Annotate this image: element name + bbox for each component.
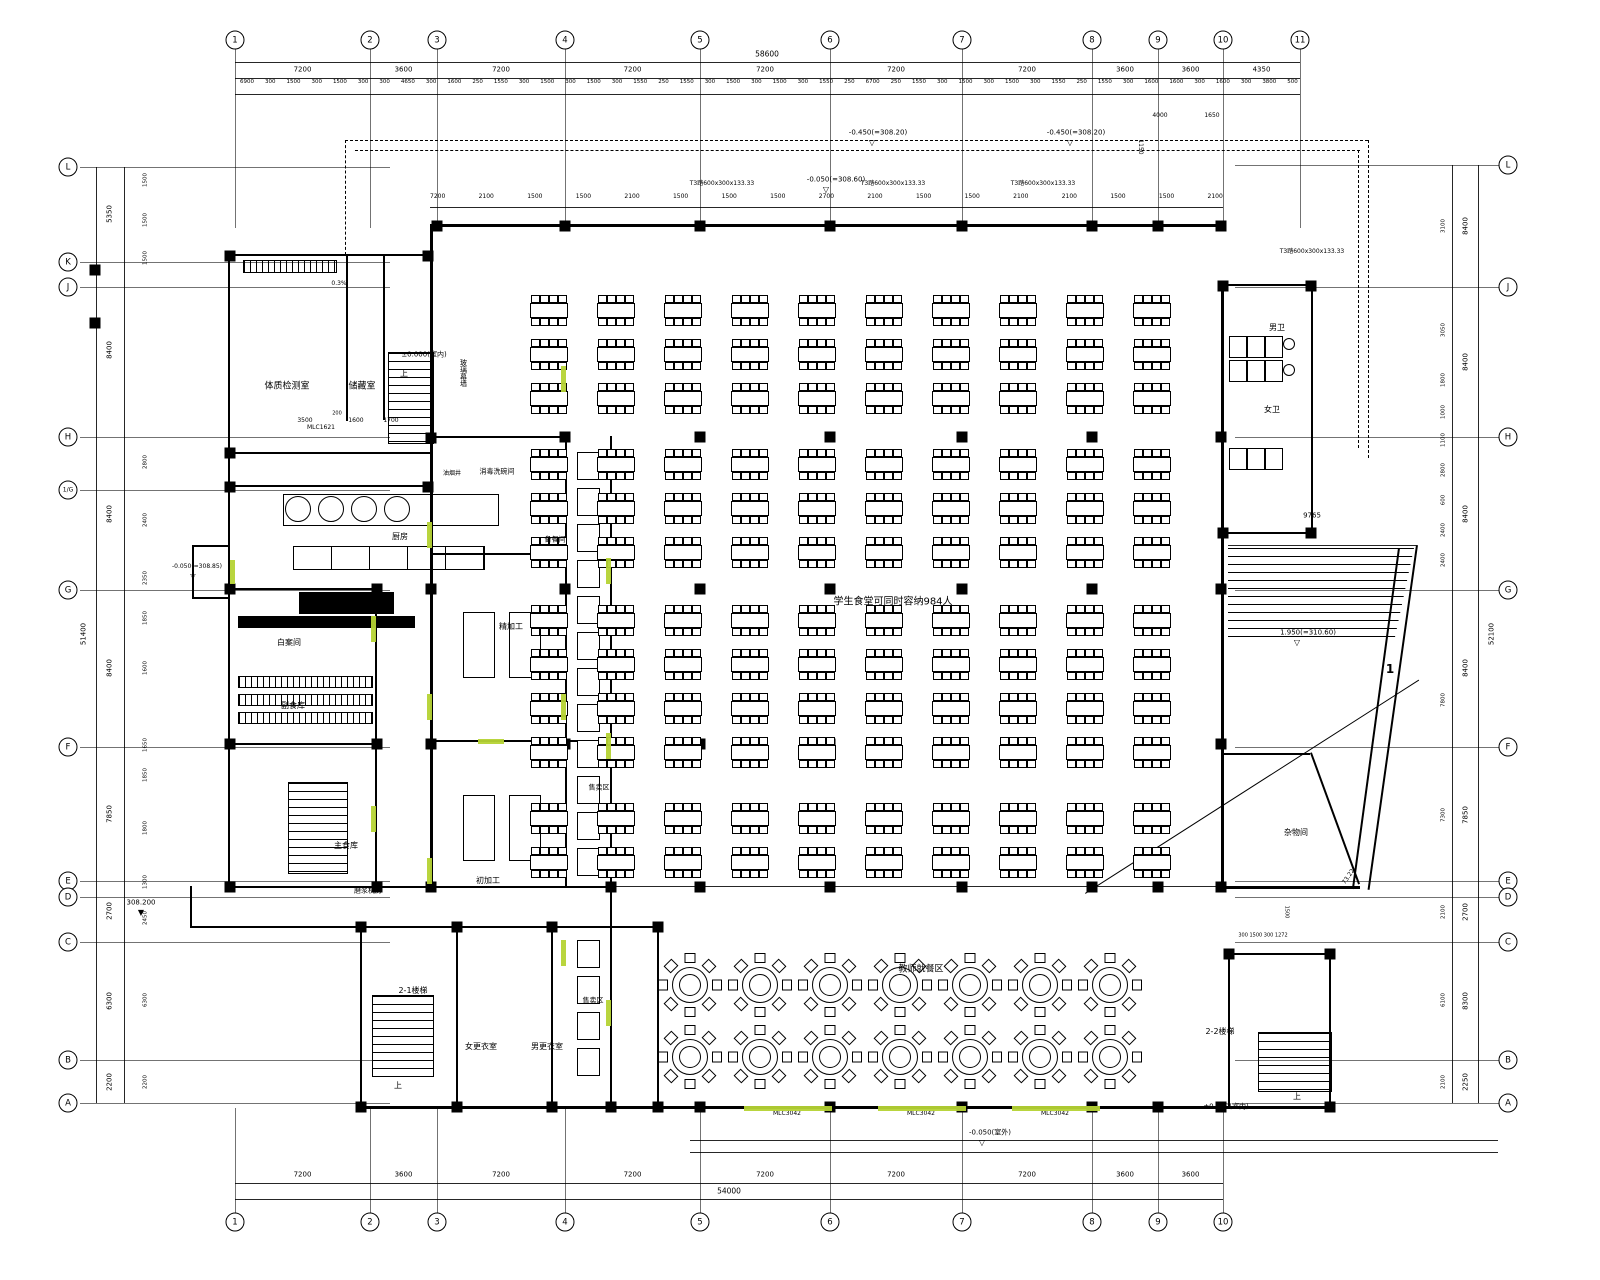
hatch-area — [1258, 1032, 1332, 1092]
chair — [607, 628, 616, 636]
chair — [607, 383, 616, 391]
chair — [893, 493, 902, 501]
dining-table — [530, 457, 568, 472]
chair — [531, 672, 540, 680]
chair — [866, 295, 875, 303]
chair — [1076, 628, 1085, 636]
toilet-stall — [1265, 336, 1283, 358]
dining-table — [932, 303, 970, 318]
chair — [1052, 997, 1067, 1012]
chair — [826, 560, 835, 568]
chair — [1000, 716, 1009, 724]
dim-label: 58600 — [755, 50, 779, 58]
chair — [665, 605, 674, 613]
chair — [875, 472, 884, 480]
chair — [658, 1052, 668, 1063]
chair — [808, 560, 817, 568]
chair — [817, 737, 826, 745]
chair — [750, 737, 759, 745]
dim-label: 1500 — [1005, 80, 1019, 86]
chair — [625, 472, 634, 480]
chair — [933, 449, 942, 457]
door-opening-highlight — [427, 522, 432, 548]
chair — [683, 737, 692, 745]
chair — [960, 649, 969, 657]
chair — [625, 649, 634, 657]
chair — [866, 339, 875, 347]
grid-line — [1235, 437, 1500, 438]
dim-label: 4650 — [401, 80, 415, 86]
chair — [674, 537, 683, 545]
wall — [192, 545, 229, 547]
chair — [942, 472, 951, 480]
chair — [558, 295, 567, 303]
chair — [607, 649, 616, 657]
plan-label: ▼ — [138, 909, 144, 917]
chair — [1161, 493, 1170, 501]
chair — [607, 295, 616, 303]
chair — [616, 449, 625, 457]
chair — [692, 737, 701, 745]
chair — [741, 847, 750, 855]
chair — [1000, 537, 1009, 545]
chair — [817, 362, 826, 370]
chair — [942, 847, 951, 855]
chair — [1085, 560, 1094, 568]
chair — [951, 628, 960, 636]
chair — [692, 295, 701, 303]
dining-table — [1133, 303, 1171, 318]
chair — [665, 693, 674, 701]
chair — [1094, 560, 1103, 568]
dim-label: 1600 — [1144, 80, 1158, 86]
chair — [1018, 537, 1027, 545]
chair — [1094, 716, 1103, 724]
chair — [1027, 493, 1036, 501]
chair — [1076, 803, 1085, 811]
equipment-circle — [351, 496, 377, 522]
dim-label: 250 — [844, 80, 855, 86]
dining-table — [999, 745, 1037, 760]
dim-label: 52100 — [1489, 623, 1496, 645]
chair — [1085, 826, 1094, 834]
chair — [549, 649, 558, 657]
chair — [1078, 1052, 1088, 1063]
chair — [1035, 953, 1046, 963]
chair — [842, 997, 857, 1012]
toilet-stall — [1229, 448, 1247, 470]
chair — [1083, 997, 1098, 1012]
chair — [893, 826, 902, 834]
chair — [1000, 383, 1009, 391]
grid-bubble: F — [1499, 738, 1518, 757]
chair — [1152, 870, 1161, 878]
chair — [1067, 803, 1076, 811]
chair — [732, 339, 741, 347]
chair — [607, 826, 616, 834]
dim-label: 7200 — [887, 1172, 905, 1179]
chair — [808, 449, 817, 457]
chair — [531, 472, 540, 480]
plan-label: 初加工 — [476, 877, 500, 885]
chair — [1027, 826, 1036, 834]
chair — [549, 803, 558, 811]
chair — [960, 826, 969, 834]
chair — [1161, 716, 1170, 724]
thin-line — [1478, 165, 1479, 1103]
chair — [965, 1007, 976, 1017]
chair — [732, 649, 741, 657]
chair — [683, 449, 692, 457]
chair — [598, 295, 607, 303]
chair — [1094, 493, 1103, 501]
chair — [531, 295, 540, 303]
chair — [895, 1007, 906, 1017]
grid-line — [80, 167, 390, 168]
chair — [616, 493, 625, 501]
chair — [895, 1025, 906, 1035]
chair — [759, 760, 768, 768]
chair — [692, 383, 701, 391]
chair — [741, 628, 750, 636]
chair — [598, 383, 607, 391]
chair — [884, 760, 893, 768]
chair — [549, 760, 558, 768]
chair — [531, 537, 540, 545]
chair — [598, 339, 607, 347]
dim-label: 1550 — [912, 80, 926, 86]
chair — [702, 1030, 717, 1045]
chair — [1094, 628, 1103, 636]
dim-label: 1550 — [1098, 80, 1112, 86]
plan-label: ▽ — [979, 1139, 985, 1147]
chair — [1105, 953, 1116, 963]
chair — [875, 537, 884, 545]
chair — [598, 847, 607, 855]
chair — [683, 472, 692, 480]
grid-line — [1235, 287, 1500, 288]
column — [653, 922, 664, 933]
chair — [1067, 628, 1076, 636]
column — [90, 265, 101, 276]
chair — [933, 295, 942, 303]
chair — [1094, 362, 1103, 370]
chair — [1161, 847, 1170, 855]
column — [695, 584, 706, 595]
chair — [960, 693, 969, 701]
chair — [540, 737, 549, 745]
chair — [741, 605, 750, 613]
chair — [992, 1052, 1002, 1063]
chair — [884, 737, 893, 745]
chair — [1134, 672, 1143, 680]
chair — [665, 362, 674, 370]
chair — [1027, 449, 1036, 457]
chair — [933, 803, 942, 811]
chair — [549, 672, 558, 680]
chair — [1018, 870, 1027, 878]
chair — [933, 406, 942, 414]
chair — [1134, 760, 1143, 768]
dim-label: 1500 — [333, 80, 347, 86]
chair — [1085, 803, 1094, 811]
plan-label: -0.450(=308.20) — [1047, 130, 1105, 137]
plan-label: 白案间 — [277, 639, 301, 647]
chair — [1076, 295, 1085, 303]
chair — [674, 516, 683, 524]
chair — [1094, 870, 1103, 878]
chair — [1000, 737, 1009, 745]
chair — [1094, 847, 1103, 855]
chair — [531, 362, 540, 370]
chair — [1143, 737, 1152, 745]
chair — [558, 516, 567, 524]
round-table-inner — [1099, 1046, 1121, 1068]
equipment-circle — [285, 496, 311, 522]
chair — [803, 997, 818, 1012]
grid-bubble: 11 — [1291, 31, 1310, 50]
chair — [875, 295, 884, 303]
chair — [803, 1069, 818, 1084]
dining-table — [731, 657, 769, 672]
plan-label: 1150 — [1137, 139, 1143, 154]
dim-label: 1500 — [540, 80, 554, 86]
chair — [1052, 958, 1067, 973]
dim-label: 7200 — [624, 67, 642, 74]
chair — [933, 693, 942, 701]
chair — [1018, 318, 1027, 326]
chair — [1134, 383, 1143, 391]
chair — [1143, 362, 1152, 370]
chair — [607, 605, 616, 613]
chair — [1076, 672, 1085, 680]
chair — [1143, 318, 1152, 326]
chair — [982, 997, 997, 1012]
chair — [884, 716, 893, 724]
door-opening-highlight — [561, 694, 566, 720]
dining-table — [932, 457, 970, 472]
hatch-area — [293, 546, 485, 570]
chair — [893, 672, 902, 680]
dim-label: 51400 — [81, 623, 88, 645]
chair — [692, 672, 701, 680]
dim-label: 1500 — [959, 80, 973, 86]
chair — [893, 406, 902, 414]
chair — [663, 958, 678, 973]
grid-line — [1223, 48, 1224, 228]
chair — [759, 693, 768, 701]
dim-label: 1600 — [447, 80, 461, 86]
chair — [1134, 605, 1143, 613]
chair — [951, 716, 960, 724]
plan-label: MLC3042 — [907, 1111, 935, 1117]
dining-table — [999, 303, 1037, 318]
chair — [625, 449, 634, 457]
chair — [982, 1069, 997, 1084]
dim-label: 3800 — [1262, 80, 1276, 86]
chair — [1132, 1052, 1142, 1063]
chair — [683, 493, 692, 501]
grid-bubble: F — [59, 738, 78, 757]
dining-table — [530, 545, 568, 560]
dining-table — [999, 613, 1037, 628]
chair — [1134, 693, 1143, 701]
grid-bubble: 2 — [361, 31, 380, 50]
chair — [665, 672, 674, 680]
wall — [551, 926, 553, 1107]
chair — [540, 449, 549, 457]
grid-line — [700, 48, 701, 228]
grid-line — [370, 1108, 371, 1214]
chair — [1152, 362, 1161, 370]
chair — [540, 383, 549, 391]
chair — [826, 383, 835, 391]
chair — [938, 980, 948, 991]
chair — [825, 1079, 836, 1089]
dim-label: 1500 — [143, 173, 149, 187]
chair — [750, 605, 759, 613]
dim-label: 1850 — [143, 768, 149, 782]
chair — [683, 560, 692, 568]
wall — [190, 886, 192, 928]
grid-line — [1235, 881, 1500, 882]
grid-bubble: 9 — [1149, 31, 1168, 50]
plan-label: 2-1楼梯 — [398, 987, 427, 995]
chair — [960, 847, 969, 855]
chair — [938, 1052, 948, 1063]
chair — [884, 339, 893, 347]
chair — [607, 672, 616, 680]
dim-label: 2250 — [1463, 1073, 1470, 1091]
chair — [759, 339, 768, 347]
chair — [674, 737, 683, 745]
dining-table — [530, 811, 568, 826]
chair — [1009, 672, 1018, 680]
chair — [755, 1007, 766, 1017]
chair — [942, 628, 951, 636]
diagonal-line — [1310, 752, 1360, 884]
chair — [607, 870, 616, 878]
dim-label: 6100 — [1441, 993, 1447, 1007]
chair — [951, 339, 960, 347]
dim-label: 8300 — [1463, 992, 1470, 1010]
chair — [1067, 295, 1076, 303]
chair — [1035, 1025, 1046, 1035]
hatch-area — [288, 782, 348, 874]
chair — [1105, 1079, 1116, 1089]
chair — [875, 803, 884, 811]
chair — [549, 493, 558, 501]
chair — [772, 1030, 787, 1045]
chair — [549, 362, 558, 370]
chair — [558, 339, 567, 347]
dim-label: 300 — [565, 80, 576, 86]
chair — [683, 760, 692, 768]
chair — [875, 339, 884, 347]
chair — [685, 953, 696, 963]
toilet-stall — [1265, 448, 1283, 470]
plan-label: 体质检测室 — [264, 383, 309, 392]
chair — [893, 803, 902, 811]
chair — [540, 628, 549, 636]
chair — [558, 737, 567, 745]
chair — [1134, 472, 1143, 480]
dining-table — [664, 545, 702, 560]
chair — [772, 1069, 787, 1084]
column — [1087, 584, 1098, 595]
chair — [683, 295, 692, 303]
chair — [1009, 560, 1018, 568]
wall — [383, 256, 385, 420]
chair — [759, 672, 768, 680]
chair — [625, 672, 634, 680]
chair — [875, 826, 884, 834]
column — [695, 432, 706, 443]
chair — [1027, 295, 1036, 303]
plan-label: -0.050(=308.60) — [807, 177, 865, 184]
hatch-area — [388, 352, 434, 444]
chair — [808, 295, 817, 303]
chair — [875, 406, 884, 414]
dim-label: 3050 — [1441, 323, 1447, 337]
chair — [1018, 560, 1027, 568]
service-counter — [577, 1012, 600, 1040]
dim-label: 7200 — [1018, 67, 1036, 74]
chair — [683, 605, 692, 613]
chair — [683, 362, 692, 370]
chair — [817, 693, 826, 701]
chair — [893, 649, 902, 657]
chair — [665, 537, 674, 545]
dining-table — [999, 501, 1037, 516]
dim-label: 1500 — [576, 194, 591, 200]
chair — [702, 1069, 717, 1084]
chair — [1143, 406, 1152, 414]
chair — [808, 406, 817, 414]
chair — [549, 693, 558, 701]
chair — [960, 760, 969, 768]
chair — [741, 737, 750, 745]
grid-line — [1158, 1108, 1159, 1214]
chair — [799, 605, 808, 613]
chair — [1161, 649, 1170, 657]
chair — [1105, 1025, 1116, 1035]
chair — [692, 693, 701, 701]
chair — [1161, 406, 1170, 414]
chair — [741, 449, 750, 457]
door-opening-highlight — [427, 858, 432, 884]
chair — [1143, 560, 1152, 568]
chair — [663, 997, 678, 1012]
chair — [1009, 826, 1018, 834]
chair — [951, 826, 960, 834]
chair — [808, 537, 817, 545]
chair — [1018, 847, 1027, 855]
chair — [1094, 672, 1103, 680]
chair — [1161, 362, 1170, 370]
chair — [750, 693, 759, 701]
chair — [1067, 672, 1076, 680]
dashed-overhang-line — [1368, 140, 1369, 458]
chair — [692, 847, 701, 855]
chair — [1161, 516, 1170, 524]
chair — [960, 472, 969, 480]
chair — [1161, 318, 1170, 326]
dim-label: 300 — [426, 80, 437, 86]
plan-label: 1700 — [383, 418, 398, 424]
dining-table — [731, 501, 769, 516]
chair — [1152, 537, 1161, 545]
